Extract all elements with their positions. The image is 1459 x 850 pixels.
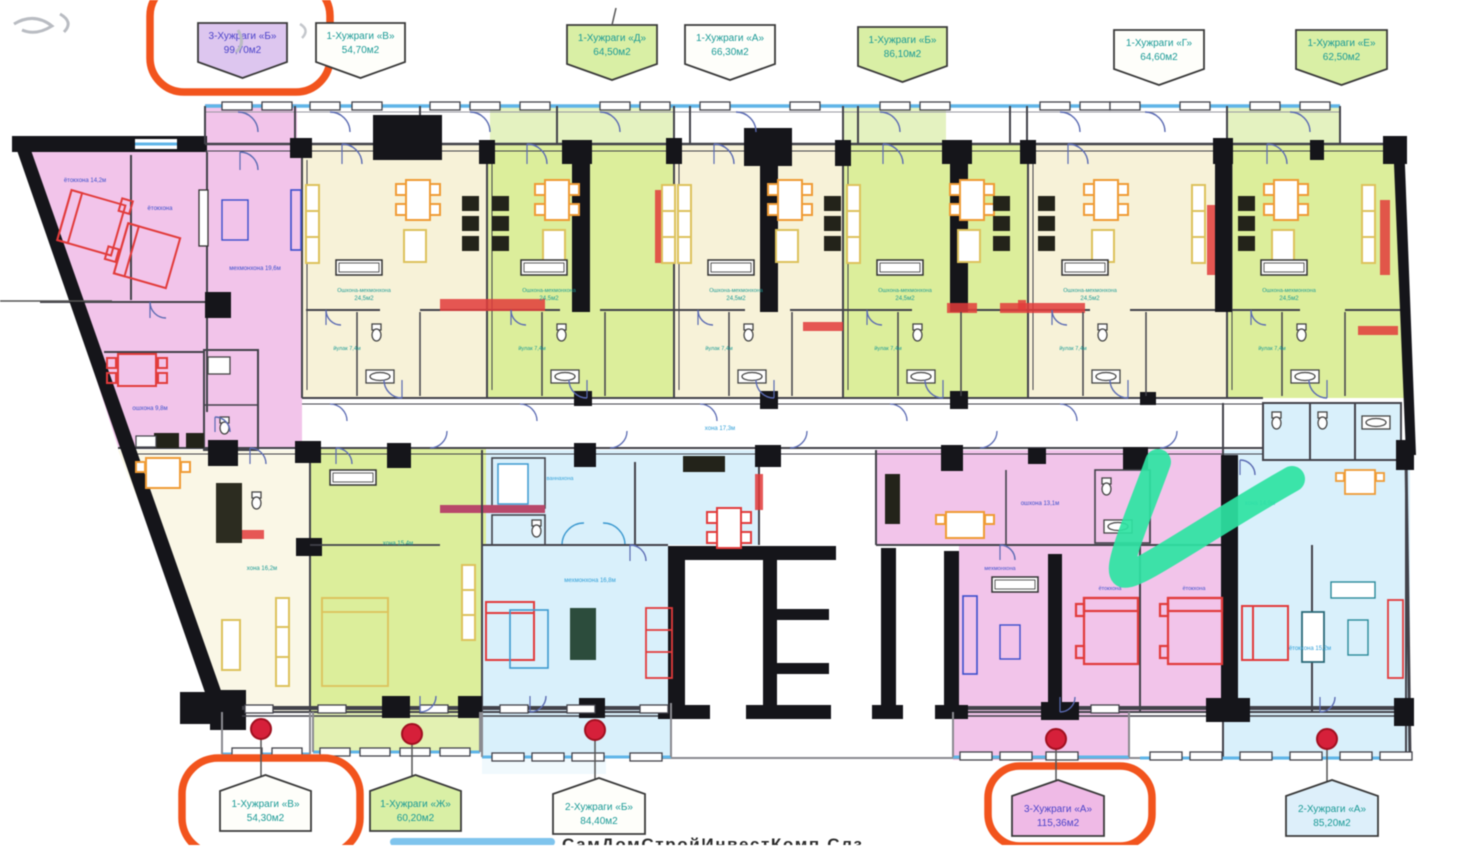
svg-text:1-Хужраги «Б»: 1-Хужраги «Б» <box>869 35 937 46</box>
svg-text:1-Хужраги «Г»: 1-Хужраги «Г» <box>1126 38 1193 49</box>
svg-text:86,10м2: 86,10м2 <box>884 49 922 60</box>
svg-text:115,36м2: 115,36м2 <box>1037 818 1080 829</box>
svg-text:СамДомСтройИнвестКомп Слз: СамДомСтройИнвестКомп Слз <box>562 835 862 845</box>
svg-text:24,5м2: 24,5м2 <box>726 296 746 302</box>
svg-text:24,5м2: 24,5м2 <box>1279 296 1299 302</box>
svg-text:Ошхона-мехмонхона: Ошхона-мехмонхона <box>878 288 932 294</box>
svg-text:60,20м2: 60,20м2 <box>397 813 435 824</box>
svg-text:1-Хужраги «В»: 1-Хужраги «В» <box>326 31 395 42</box>
svg-text:хона 17,3м: хона 17,3м <box>705 426 735 432</box>
svg-text:йулак 7,4м: йулак 7,4м <box>1059 345 1087 352</box>
svg-text:24,5м2: 24,5м2 <box>895 296 915 302</box>
svg-text:мехмонхона 16,8м: мехмонхона 16,8м <box>564 578 616 584</box>
svg-text:ошхона 13,1м: ошхона 13,1м <box>1021 501 1060 507</box>
svg-text:1-Хужраги «А»: 1-Хужраги «А» <box>696 33 765 44</box>
svg-text:ваннахона: ваннахона <box>547 476 575 482</box>
svg-text:йулак 7,4м: йулак 7,4м <box>333 345 361 352</box>
svg-text:Ошхона-мехмонхона: Ошхона-мехмонхона <box>522 288 576 294</box>
svg-text:йулак 7,4м: йулак 7,4м <box>518 345 546 352</box>
svg-text:ётокхона: ётокхона <box>1099 586 1123 592</box>
svg-text:хона 15,4м: хона 15,4м <box>383 541 413 547</box>
svg-text:Ошхона-мехмонхона: Ошхона-мехмонхона <box>337 288 391 294</box>
svg-text:йулак 7,4м: йулак 7,4м <box>874 345 902 352</box>
svg-text:ётокхона 15,2м: ётокхона 15,2м <box>1289 646 1331 652</box>
svg-text:ётокхона: ётокхона <box>1183 586 1207 592</box>
svg-text:ётокхона 14,2м: ётокхона 14,2м <box>64 178 106 184</box>
svg-text:64,50м2: 64,50м2 <box>593 47 631 58</box>
svg-text:1-Хужраги «В»: 1-Хужраги «В» <box>231 799 300 810</box>
svg-text:62,50м2: 62,50м2 <box>1323 52 1361 63</box>
svg-text:2-Хужраги «Б»: 2-Хужраги «Б» <box>565 802 633 813</box>
svg-text:64,60м2: 64,60м2 <box>1140 52 1178 63</box>
svg-text:24,5м2: 24,5м2 <box>354 296 374 302</box>
svg-text:2-Хужраги «А»: 2-Хужраги «А» <box>1298 804 1367 815</box>
svg-text:3-Хужраги «А»: 3-Хужраги «А» <box>1024 804 1093 815</box>
svg-text:99,70м2: 99,70м2 <box>224 45 262 56</box>
svg-text:85,20м2: 85,20м2 <box>1313 818 1351 829</box>
svg-text:54,30м2: 54,30м2 <box>247 813 285 824</box>
svg-text:66,30м2: 66,30м2 <box>711 47 749 58</box>
svg-text:йулак 7,4м: йулак 7,4м <box>1258 345 1286 352</box>
svg-text:84,40м2: 84,40м2 <box>580 816 618 827</box>
svg-text:мехмонхона 19,6м: мехмонхона 19,6м <box>229 266 281 272</box>
svg-text:24,5м2: 24,5м2 <box>539 296 559 302</box>
svg-text:ётокхона: ётокхона <box>148 206 174 212</box>
svg-text:Ошхона-мехмонхона: Ошхона-мехмонхона <box>1063 288 1117 294</box>
svg-text:ошхона 9,8м: ошхона 9,8м <box>132 406 167 412</box>
svg-text:1-Хужраги «Ж»: 1-Хужраги «Ж» <box>380 799 451 810</box>
svg-text:Ошхона-мехмонхона: Ошхона-мехмонхона <box>1262 288 1316 294</box>
svg-text:24,5м2: 24,5м2 <box>1080 296 1100 302</box>
svg-text:хона 16,2м: хона 16,2м <box>247 566 277 572</box>
svg-text:мехмонхона: мехмонхона <box>984 566 1016 572</box>
svg-text:1-Хужраги «Д»: 1-Хужраги «Д» <box>578 33 647 44</box>
svg-text:1-Хужраги «Е»: 1-Хужраги «Е» <box>1307 38 1376 49</box>
svg-text:Ошхона-мехмонхона: Ошхона-мехмонхона <box>709 288 763 294</box>
svg-text:йулак 7,4м: йулак 7,4м <box>705 345 733 352</box>
svg-text:54,70м2: 54,70м2 <box>342 45 380 56</box>
